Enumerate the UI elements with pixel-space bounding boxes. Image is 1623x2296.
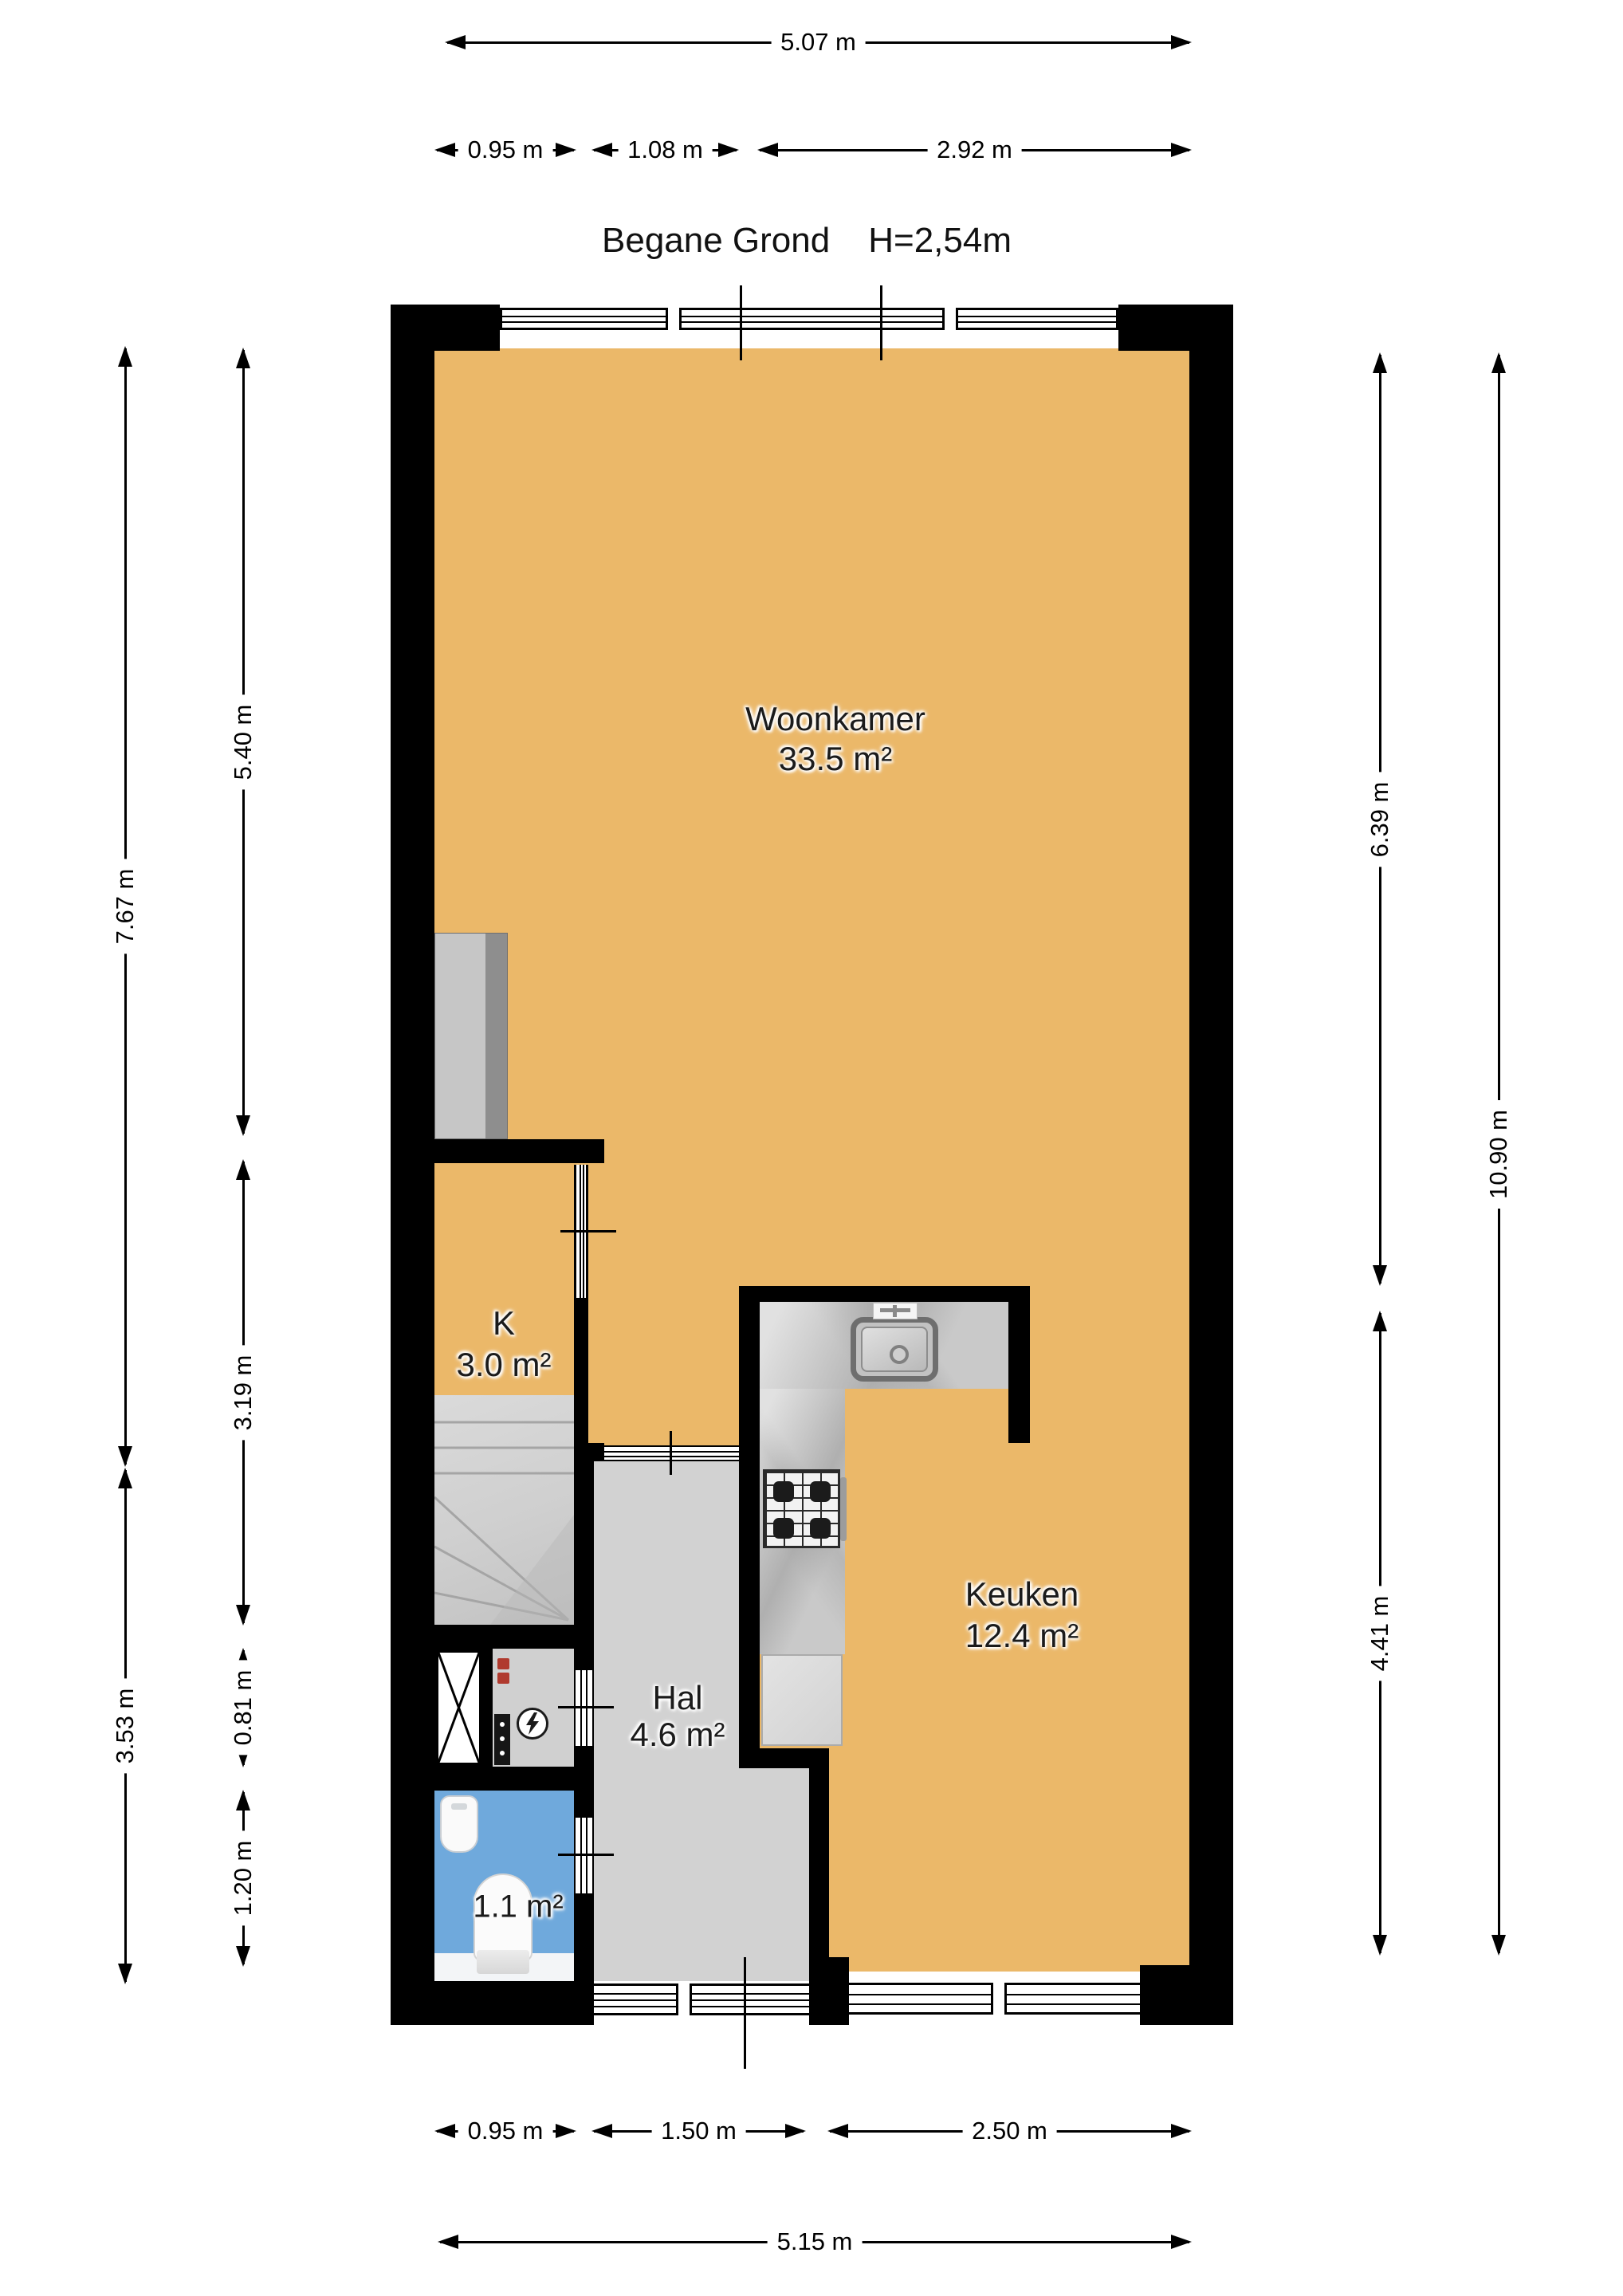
wall-kast-right: [574, 1298, 588, 1443]
room-area-kast: 3.0 m²: [456, 1346, 551, 1384]
stove-knobs: [840, 1477, 847, 1541]
window-center-tick: [880, 285, 882, 360]
room-label-kast: K: [493, 1304, 515, 1343]
window-kitchen: [849, 1983, 1140, 2015]
wall-top-left-corner: [391, 305, 500, 351]
wall-bottom-right-corner: [1140, 1965, 1233, 2025]
wall-hall-west-3: [574, 1893, 594, 2025]
dim-left-inner-3: 0.81 m: [236, 1649, 250, 1767]
dim-bottom-seg1: 0.95 m: [435, 2124, 576, 2138]
room-area-toilet: 1.1 m²: [473, 1889, 563, 1925]
lightning-icon: [526, 1712, 539, 1735]
faucet-icon: [873, 1303, 918, 1319]
room-area-woonkamer: 33.5 m²: [779, 740, 892, 778]
floor-name: Begane Grond: [602, 221, 830, 261]
window-frame-break: [942, 308, 958, 330]
stove-icon: [763, 1469, 840, 1548]
dim-top-total: 5.07 m: [446, 35, 1191, 49]
burner-icon: [810, 1518, 831, 1539]
room-area-keuken: 12.4 m²: [965, 1617, 1079, 1655]
floor-hall-ext: [760, 1768, 809, 1981]
wall-under-stairs: [434, 1625, 594, 1649]
dim-top-seg1: 0.95 m: [435, 143, 576, 157]
kitchen-cabinet: [761, 1654, 843, 1746]
wall-closet-toilet: [434, 1767, 594, 1791]
dim-top-seg3: 2.92 m: [758, 143, 1191, 157]
door-electrical-tick: [558, 1706, 614, 1708]
burner-icon: [810, 1481, 831, 1502]
window-frame-break: [991, 1983, 1007, 2015]
wall-closet-divider: [483, 1649, 493, 1767]
dim-top-seg2: 1.08 m: [592, 143, 738, 157]
electric-meter-icon: [517, 1708, 548, 1740]
meter-cabinet-x-icon: [434, 1649, 483, 1767]
window-center-tick: [740, 285, 742, 360]
wall-bottom-left: [391, 1981, 594, 2025]
wall-outer-left: [391, 305, 434, 2025]
wall-kast-foot: [574, 1443, 604, 1461]
ceiling-height: H=2,54m: [868, 221, 1012, 261]
wall-top-right-corner: [1118, 305, 1233, 351]
kitchen-window-sill: [849, 1972, 1140, 1983]
dim-left-inner-4: 1.20 m: [236, 1791, 250, 1966]
room-label-woonkamer: Woonkamer: [745, 700, 925, 738]
plan-title: Begane Grond H=2,54m: [602, 221, 1012, 261]
window-frame-break: [666, 308, 682, 330]
door-toilet-tick: [558, 1854, 614, 1856]
room-label-keuken: Keuken: [965, 1575, 1079, 1614]
fuse-panel-icon: [494, 1714, 510, 1765]
dim-right-outer: 10.90 m: [1491, 353, 1506, 1955]
front-door: [594, 1983, 809, 2015]
hand-basin-icon: [440, 1795, 478, 1853]
wall-kast-top: [434, 1139, 604, 1163]
window-top-facade: [500, 308, 1118, 330]
burner-icon: [773, 1518, 794, 1539]
wall-kitchen-counter-end: [1008, 1286, 1030, 1443]
sink-icon: [851, 1317, 938, 1382]
dim-left-outer-lower: 3.53 m: [118, 1468, 132, 1983]
floorplan-page: { "header": { "title": "Begane Grond", "…: [0, 0, 1623, 2296]
dim-bottom-seg3: 2.50 m: [828, 2124, 1191, 2138]
wall-kitchen-west: [739, 1286, 760, 1768]
front-door-tick: [744, 1957, 746, 2069]
dim-right-inner-upper: 6.39 m: [1373, 353, 1387, 1285]
door-hall-living-tick: [670, 1431, 672, 1475]
wall-kitchen-counter: [739, 1286, 1030, 1302]
room-label-hal: Hal: [652, 1679, 702, 1717]
wall-hall-east: [809, 1748, 829, 1981]
window-kast-tick: [560, 1230, 616, 1233]
dim-bottom-total: 5.15 m: [438, 2235, 1191, 2249]
socket-icon: [497, 1658, 509, 1669]
chimney: [434, 933, 508, 1139]
wall-outer-right: [1189, 305, 1233, 2025]
stairs-icon: [434, 1395, 574, 1625]
room-area-hal: 4.6 m²: [630, 1716, 725, 1754]
dim-left-inner-1: 5.40 m: [236, 348, 250, 1135]
burner-icon: [773, 1481, 794, 1502]
dim-right-inner-lower: 4.41 m: [1373, 1311, 1387, 1955]
chimney-shading: [485, 934, 507, 1138]
socket-icon: [497, 1673, 509, 1684]
door-frame-break: [676, 1983, 692, 2015]
dim-left-outer-upper: 7.67 m: [118, 347, 132, 1466]
dim-bottom-seg2: 1.50 m: [592, 2124, 805, 2138]
dim-left-inner-2: 3.19 m: [236, 1160, 250, 1625]
